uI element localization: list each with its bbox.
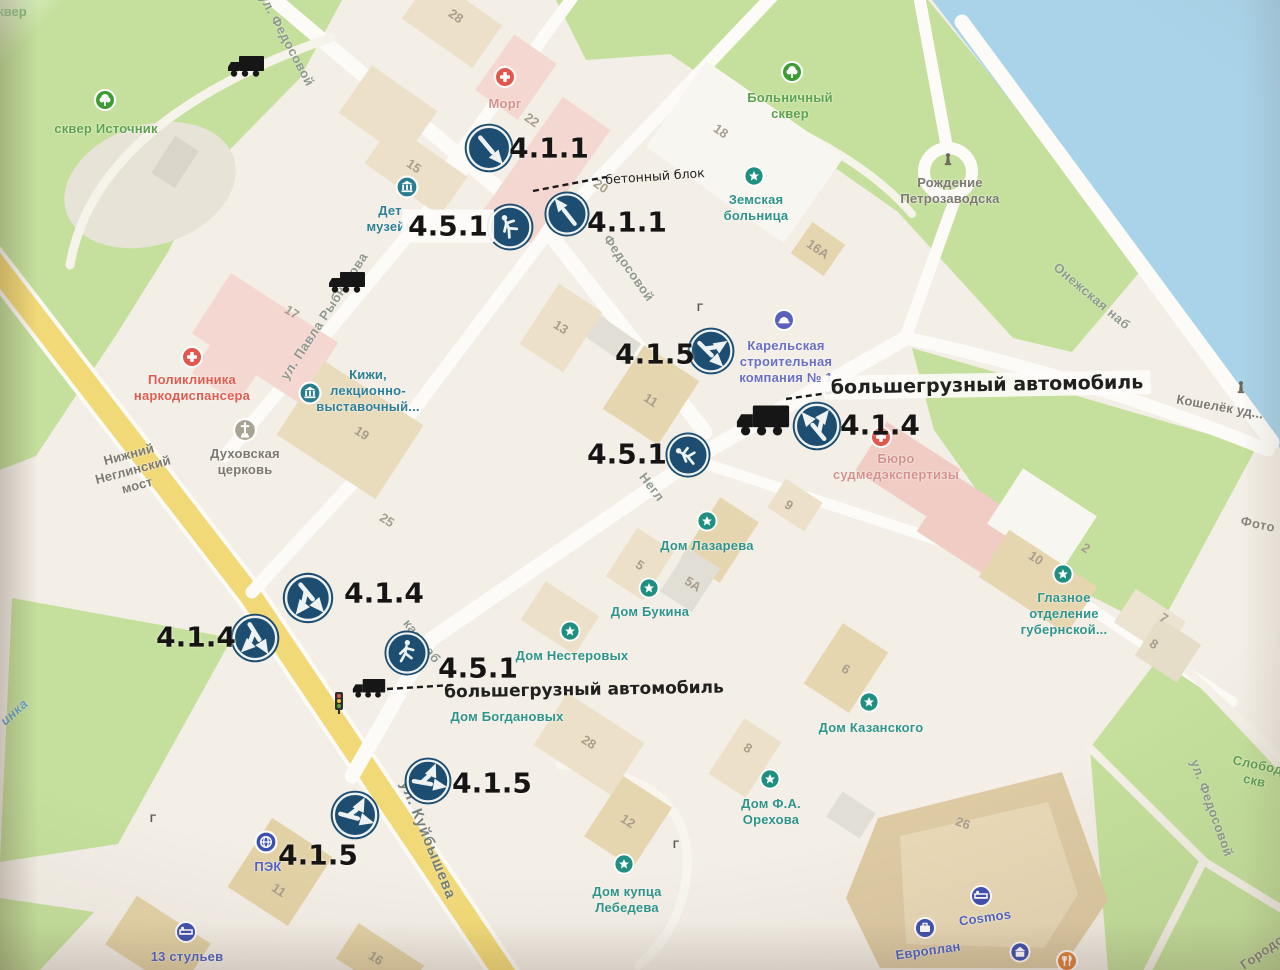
poi-label-line: Дом Богдановых — [450, 709, 563, 725]
poi-label-line: сквер — [747, 106, 833, 122]
poi-label-line: строительная — [739, 354, 833, 370]
poi-label-line: Дом купца — [592, 884, 661, 900]
poi-label: Дом купцаЛебедева — [592, 884, 661, 916]
sign-code-label: 4.1.1 — [509, 132, 589, 165]
poi-label: Дом Богдановых — [450, 709, 563, 725]
truck-icon — [226, 54, 266, 78]
food-icon — [1056, 950, 1078, 970]
poi-label-line: больница — [724, 208, 789, 224]
poi-label-line: Дом Казанского — [819, 720, 924, 736]
poi-label-line: компания № 1 — [739, 370, 833, 386]
bank-icon — [1010, 942, 1031, 963]
sign-code-label: 4.1.4 — [840, 409, 920, 442]
road-sign-4.1.5-icon — [402, 755, 454, 807]
sign-code-label: 4.5.1 — [438, 652, 518, 685]
poi-label: РождениеПетрозаводска — [900, 175, 999, 207]
map-photo: сквер 4.1.14.1.14.5.14.1.54.1 — [0, 0, 1280, 970]
road-sign-4.1.5-icon — [328, 788, 382, 842]
gate-icon: Г — [150, 813, 156, 825]
pek-icon — [255, 831, 278, 854]
poi-label-line: Дом Нестеровых — [516, 648, 629, 664]
bed-icon — [970, 885, 992, 907]
star-icon — [697, 511, 718, 532]
road-sign-4.1.1-icon — [542, 189, 592, 239]
road-sign-4.5.1-icon — [663, 430, 713, 480]
poi-label: Глазноеотделениегубернской... — [1021, 590, 1108, 638]
monument-icon — [942, 152, 955, 168]
poi-label: Дом Лазарева — [660, 538, 753, 554]
star-icon — [614, 854, 635, 875]
poi-label: Дом Ф.А.Орехова — [741, 796, 801, 828]
bed-icon — [175, 921, 197, 943]
poi-label-line: Дом Букина — [611, 604, 689, 620]
poi-label-line: Лебедева — [592, 900, 661, 916]
road-sign-4.1.4-icon — [790, 399, 844, 453]
poi-label: Поликлиниканаркодиспансера — [134, 372, 250, 404]
sign-code-label: 4.1.5 — [278, 839, 358, 872]
poi-label-line: лекционно- — [316, 383, 420, 399]
road-sign-4.1.1-icon — [462, 121, 516, 175]
church-icon — [233, 418, 257, 442]
park-corner-label: сквер — [0, 4, 27, 19]
museum-icon — [396, 176, 419, 199]
park-icon — [94, 89, 116, 111]
poi-label-line: Дом Лазарева — [660, 538, 753, 554]
star-icon — [859, 692, 880, 713]
star-icon — [744, 166, 765, 187]
poi-label-line: наркодиспансера — [134, 388, 250, 404]
poi-label-line: Бюро — [833, 451, 959, 467]
traffic-light-icon — [334, 692, 344, 714]
poi-label-line: Земская — [724, 192, 789, 208]
poi-label: Дом Казанского — [819, 720, 924, 736]
poi-label: Больничныйсквер — [747, 90, 833, 122]
park-icon — [781, 61, 803, 83]
sign-code-label: 4.1.4 — [156, 621, 236, 654]
sign-code-label: 4.5.1 — [402, 210, 494, 243]
poi-label-line: Духовская — [210, 446, 280, 462]
poi-label: 13 стульев — [151, 949, 224, 965]
poi-label-line: 13 стульев — [151, 949, 224, 965]
sign-code-label: 4.1.5 — [452, 767, 532, 800]
truck-icon — [351, 677, 387, 699]
poi-label: сквер Источник — [54, 121, 157, 137]
gate-icon: Г — [697, 302, 703, 314]
poi-label-line: Кижи, — [316, 367, 420, 383]
poi-label-line: Рождение — [900, 175, 999, 191]
company-icon — [773, 309, 795, 331]
poi-label-line: Карельская — [739, 338, 833, 354]
sign-code-label: 4.1.4 — [344, 577, 424, 610]
poi-label-line: судмедэкспертизы — [833, 467, 959, 483]
briefcase-icon — [914, 917, 936, 939]
sign-code-label: 4.5.1 — [587, 438, 667, 471]
poi-label: Карельскаястроительнаякомпания № 1 — [739, 338, 833, 386]
truck-icon — [327, 270, 367, 294]
poi-label: Дом Нестеровых — [516, 648, 629, 664]
poi-label: Духовскаяцерковь — [210, 446, 280, 478]
med-icon — [494, 66, 516, 88]
poi-label-line: губернской... — [1021, 622, 1108, 638]
poi-label-line: отделение — [1021, 606, 1108, 622]
monument-icon — [1235, 380, 1248, 396]
poi-label-line: Глазное — [1021, 590, 1108, 606]
road-sign-4.1.4-icon — [280, 570, 336, 626]
sign-code-label: 4.1.5 — [615, 338, 695, 371]
poi-label-line: Петрозаводска — [900, 191, 999, 207]
poi-label: Морг — [489, 96, 522, 112]
poi-label: Земскаябольница — [724, 192, 789, 224]
star-icon — [560, 621, 581, 642]
road-sign-4.5.1-icon — [382, 628, 432, 678]
truck-icon — [734, 403, 792, 438]
poi-label-line: Поликлиника — [134, 372, 250, 388]
poi-label-line: церковь — [210, 462, 280, 478]
poi-label: Дом Букина — [611, 604, 689, 620]
star-icon — [639, 578, 660, 599]
poi-label: Бюросудмедэкспертизы — [833, 451, 959, 483]
poi-label-line: сквер Источник — [54, 121, 157, 137]
poi-label-line: Больничный — [747, 90, 833, 106]
poi-label-line: Морг — [489, 96, 522, 112]
gate-icon: Г — [673, 839, 679, 851]
poi-label-line: Дом Ф.А. — [741, 796, 801, 812]
poi-label: Кижи,лекционно-выставочный... — [316, 367, 420, 415]
star-icon — [1053, 564, 1074, 585]
star-icon — [760, 769, 781, 790]
poi-label-line: Орехова — [741, 812, 801, 828]
poi-label-line: выставочный... — [316, 399, 420, 415]
med-icon — [181, 346, 203, 368]
sign-code-label: 4.1.1 — [587, 206, 667, 239]
